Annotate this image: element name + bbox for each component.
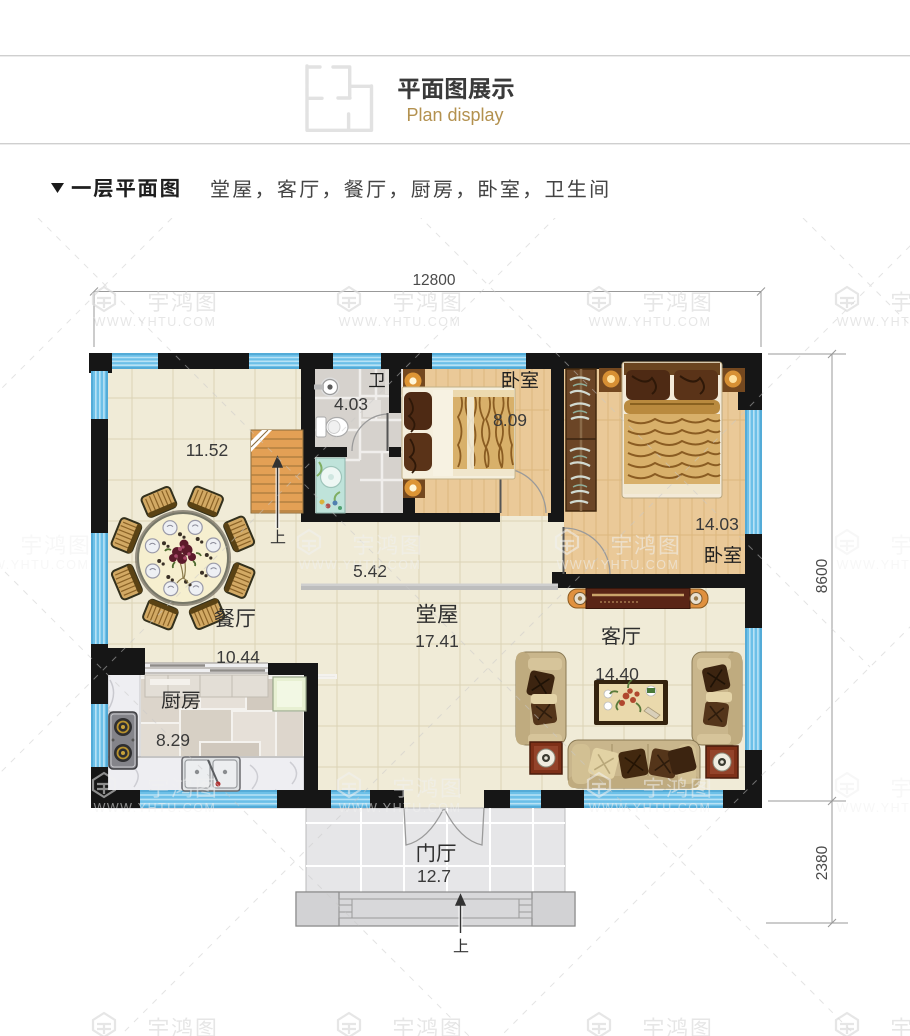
svg-text:14.40: 14.40 bbox=[595, 664, 639, 684]
svg-text:10.44: 10.44 bbox=[216, 647, 260, 667]
svg-text:12.7: 12.7 bbox=[417, 866, 451, 886]
svg-text:8.29: 8.29 bbox=[156, 730, 190, 750]
svg-text:WWW.YHTU.COM: WWW.YHTU.COM bbox=[589, 315, 712, 329]
svg-text:WWW.YHTU.COM: WWW.YHTU.COM bbox=[299, 558, 422, 572]
svg-text:WWW.YHTU.COM: WWW.YHTU.COM bbox=[0, 558, 89, 572]
svg-text:8.09: 8.09 bbox=[493, 410, 527, 430]
svg-text:4.03: 4.03 bbox=[334, 394, 368, 414]
svg-text:WWW.YHTU.COM: WWW.YHTU.COM bbox=[94, 315, 217, 329]
svg-text:8600: 8600 bbox=[814, 558, 831, 593]
svg-text:WWW.YHTU.COM: WWW.YHTU.COM bbox=[94, 801, 217, 815]
svg-text:Plan display: Plan display bbox=[406, 105, 503, 125]
svg-text:WWW.YHTU.COM: WWW.YHTU.COM bbox=[339, 801, 462, 815]
svg-text:WWW.YHTU.COM: WWW.YHTU.COM bbox=[589, 801, 712, 815]
svg-text:14.03: 14.03 bbox=[695, 514, 739, 534]
svg-text:11.52: 11.52 bbox=[186, 440, 229, 460]
svg-text:12800: 12800 bbox=[412, 272, 455, 289]
svg-text:WWW.YHTU.COM: WWW.YHTU.COM bbox=[837, 315, 910, 329]
svg-text:WWW.YHTU.COM: WWW.YHTU.COM bbox=[837, 801, 910, 815]
svg-text:WWW.YHTU.COM: WWW.YHTU.COM bbox=[557, 558, 680, 572]
svg-text:2380: 2380 bbox=[814, 845, 831, 880]
svg-text:WWW.YHTU.COM: WWW.YHTU.COM bbox=[339, 315, 462, 329]
svg-text:WWW.YHTU.COM: WWW.YHTU.COM bbox=[837, 558, 910, 572]
svg-text:17.41: 17.41 bbox=[415, 631, 459, 651]
